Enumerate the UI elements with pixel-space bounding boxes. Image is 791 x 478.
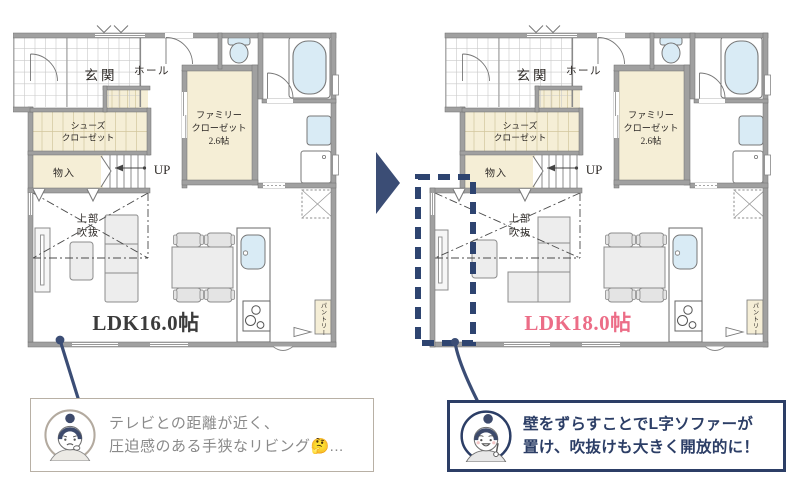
floor-plan-comparison-infographic: 玄関ホールシューズクローゼット物入UPファミリークローゼット2.6帖上部吹抜LD… <box>0 0 791 478</box>
label-pantry: パントリー <box>752 303 759 337</box>
label-up: UP <box>154 162 171 177</box>
floor-plan-after: 玄関ホールシューズクローゼット物入UPファミリークローゼット2.6帖上部吹抜LD… <box>413 12 781 352</box>
callout-before-text: テレビとの距離が近く、 圧迫感のある手狭なリビング🤔... <box>109 412 344 459</box>
label-pantry: パントリー <box>320 303 327 337</box>
label-hall: ホール <box>566 65 602 77</box>
label-shoe-closet-1: シューズ <box>71 120 106 131</box>
label-void-1: 上部 <box>509 212 531 225</box>
label-ldk-area: LDK18.0帖 <box>524 311 631 335</box>
woman-pointing-avatar-icon <box>460 410 512 462</box>
label-storage: 物入 <box>485 167 507 180</box>
label-family-closet-3: 2.6帖 <box>209 135 230 146</box>
label-shoe-closet-2: クローゼット <box>494 132 547 143</box>
label-storage: 物入 <box>53 167 75 180</box>
label-family-closet-2: クローゼット <box>191 122 246 133</box>
callout-before-line2: 圧迫感のある手狭なリビング🤔... <box>109 435 344 458</box>
label-entrance: 玄関 <box>85 67 118 83</box>
label-entrance: 玄関 <box>517 67 550 83</box>
callout-before-line1: テレビとの距離が近く、 <box>109 412 344 435</box>
label-family-closet-1: ファミリー <box>196 110 242 120</box>
callout-after: 壁をずらすことでL字ソファーが 置け、吹抜けも大きく開放的に！ <box>447 400 786 472</box>
label-up: UP <box>586 162 603 177</box>
label-shoe-closet-2: クローゼット <box>62 132 115 143</box>
callout-after-line1: 壁をずらすことでL字ソファーが <box>523 413 759 436</box>
label-void-1: 上部 <box>77 212 99 225</box>
label-family-closet-2: クローゼット <box>623 122 678 133</box>
label-family-closet-1: ファミリー <box>628 110 674 120</box>
transform-arrow-icon <box>376 150 402 216</box>
callout-after-connector <box>442 334 486 404</box>
label-shoe-closet-1: シューズ <box>503 120 538 131</box>
label-void-2: 吹抜 <box>509 226 531 239</box>
callout-before: テレビとの距離が近く、 圧迫感のある手狭なリビング🤔... <box>30 398 374 472</box>
walls <box>13 33 336 347</box>
floor-plan-before: 玄関ホールシューズクローゼット物入UPファミリークローゼット2.6帖上部吹抜LD… <box>13 12 349 352</box>
callout-after-text: 壁をずらすことでL字ソファーが 置け、吹抜けも大きく開放的に！ <box>523 413 759 460</box>
callout-after-line2: 置け、吹抜けも大きく開放的に！ <box>523 436 759 459</box>
label-hall: ホール <box>134 65 170 77</box>
callout-before-connector <box>50 330 86 402</box>
label-family-closet-3: 2.6帖 <box>641 135 662 146</box>
woman-worried-avatar-icon <box>44 409 96 461</box>
label-ldk-area: LDK16.0帖 <box>92 311 199 335</box>
label-void-2: 吹抜 <box>77 226 99 239</box>
